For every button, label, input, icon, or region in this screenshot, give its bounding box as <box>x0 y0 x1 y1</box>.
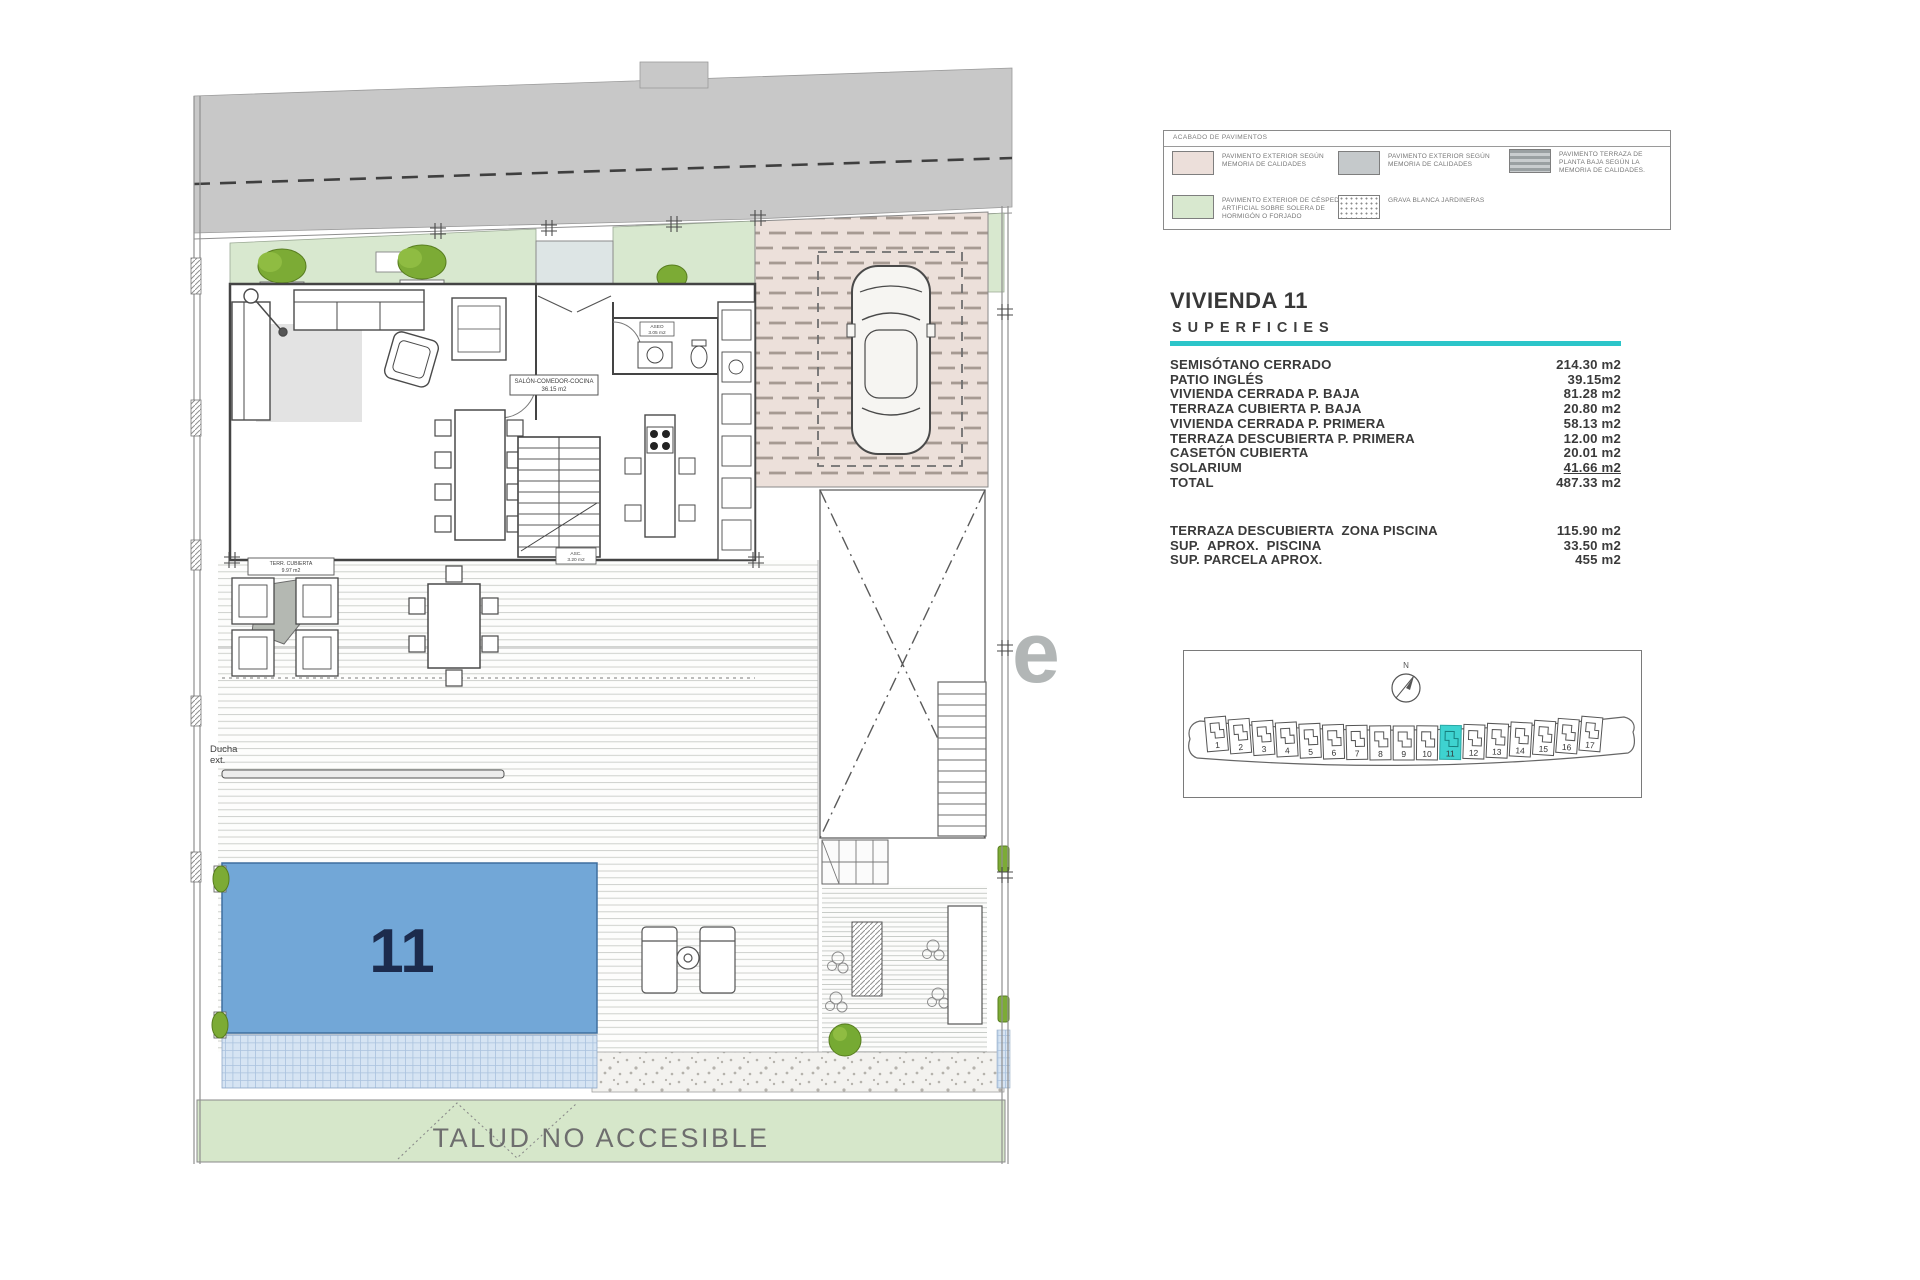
surface-row: PATIO INGLÉS39.15m2 <box>1170 373 1621 388</box>
page-title: VIVIENDA 11 <box>1170 288 1308 314</box>
interior-stairs: ASC. 3.20 m2 <box>518 437 600 564</box>
keyplan-plot-number: 16 <box>1562 742 1572 753</box>
salon-label-box: SALÓN-COMEDOR-COCINA 36.15 m2 <box>510 375 598 395</box>
legend-swatch-green <box>1172 195 1214 219</box>
surface-row: VIVIENDA CERRADA P. BAJA81.28 m2 <box>1170 387 1621 402</box>
legend-swatch-dots <box>1338 195 1380 219</box>
house-interior: ASC. 3.20 m2 ASEO 3.05 m2 <box>230 284 755 564</box>
keyplan-plot: 15 <box>1533 720 1556 755</box>
surface-row-value: 214.30 m2 <box>1556 358 1621 373</box>
shower-label-2: ext. <box>210 755 225 766</box>
pool-number: 11 <box>369 917 435 986</box>
legend-swatch-striped <box>1509 149 1551 173</box>
planter-box <box>852 922 882 996</box>
north-compass: N <box>1392 661 1420 702</box>
watermark-letter: e <box>1012 605 1060 701</box>
cooktop <box>647 427 673 453</box>
keyplan-plot-number: 12 <box>1469 748 1479 758</box>
surface-row-label: VIVIENDA CERRADA P. PRIMERA <box>1170 417 1385 432</box>
pavement-legend: ACABADO DE PAVIMENTOS PAVIMENTO EXTERIOR… <box>1163 130 1671 230</box>
exterior-stair <box>938 682 986 836</box>
legend-label: PAVIMENTO EXTERIOR SEGÚN MEMORIA DE CALI… <box>1222 153 1334 169</box>
talud-band: TALUD NO ACCESIBLE <box>197 1100 1005 1162</box>
surface-row: VIVIENDA CERRADA P. PRIMERA58.13 m2 <box>1170 417 1621 432</box>
salon-label: SALÓN-COMEDOR-COCINA <box>514 378 593 385</box>
surface-row-value: 58.13 m2 <box>1564 417 1621 432</box>
surface-row: SOLARIUM41.66 m2 <box>1170 461 1621 476</box>
keyplan-plot: 13 <box>1486 723 1508 758</box>
salon-area-label: 36.15 m2 <box>541 387 567 393</box>
surface-row: TERRAZA CUBIERTA P. BAJA20.80 m2 <box>1170 402 1621 417</box>
plan-sheet: 11 <box>0 0 1920 1280</box>
grate <box>822 840 888 884</box>
surface-row-value: 39.15m2 <box>1568 373 1621 388</box>
pool: 11 <box>222 863 597 1033</box>
surface-row-label: SUP. APROX. PISCINA <box>1170 539 1322 554</box>
surface-row-label: TOTAL <box>1170 476 1214 491</box>
stair-area-label: 3.20 m2 <box>567 557 585 563</box>
rug <box>256 324 362 422</box>
floor-lamp <box>244 289 258 303</box>
surface-row-label: SOLARIUM <box>1170 461 1242 476</box>
superficies-heading: SUPERFICIES <box>1172 320 1335 336</box>
site-key-plan: N 1234567891011121314151617 <box>1183 650 1642 798</box>
street-band <box>194 62 1012 239</box>
surface-row-value: 115.90 m2 <box>1557 524 1621 539</box>
bath-label: ASEO <box>650 324 664 330</box>
keyplan-plot: 2 <box>1228 718 1252 754</box>
keyplan-plot-number: 10 <box>1422 749 1432 759</box>
surface-row-label: CASETÓN CUBIERTA <box>1170 446 1309 461</box>
keyplan-plot-number: 3 <box>1261 744 1267 754</box>
keyplan-plot: 8 <box>1370 726 1391 760</box>
keyplan-plot-number: 7 <box>1355 748 1360 758</box>
keyplan-plot: 10 <box>1416 726 1437 760</box>
keyplan-plot: 16 <box>1556 718 1580 754</box>
carport-area <box>755 212 988 487</box>
keyplan-plot-number: 5 <box>1308 747 1313 757</box>
stair-label: ASC. <box>570 551 581 557</box>
gravel-strip <box>592 1052 1004 1092</box>
surface-row-value: 455 m2 <box>1575 553 1621 568</box>
talud-label: TALUD NO ACCESIBLE <box>432 1123 769 1153</box>
legend-label: PAVIMENTO EXTERIOR DE CÉSPED ARTIFICIAL … <box>1222 197 1340 221</box>
keyplan-plot: 4 <box>1275 722 1298 757</box>
keyplan-plot: 11 <box>1440 725 1462 759</box>
surface-row-value: 81.28 m2 <box>1564 387 1621 402</box>
surface-row-value: 33.50 m2 <box>1564 539 1621 554</box>
surface-table-extra: TERRAZA DESCUBIERTA ZONA PISCINA115.90 m… <box>1170 524 1621 568</box>
surface-row-label: SUP. PARCELA APROX. <box>1170 553 1323 568</box>
surface-row-label: SEMISÓTANO CERRADO <box>1170 358 1332 373</box>
surface-row-label: PATIO INGLÉS <box>1170 373 1264 388</box>
keyplan-plot-number: 4 <box>1285 745 1291 755</box>
surface-row-label: VIVIENDA CERRADA P. BAJA <box>1170 387 1360 402</box>
surface-row-value: 20.01 m2 <box>1564 446 1621 461</box>
surface-row: TOTAL487.33 m2 <box>1170 476 1621 491</box>
keyplan-plot: 17 <box>1579 716 1603 752</box>
keyplan-plot-number: 15 <box>1538 744 1548 755</box>
shower-label-1: Ducha <box>210 744 238 755</box>
car-icon <box>847 266 935 454</box>
key-plan-drawing: N 1234567891011121314151617 <box>1184 651 1638 794</box>
legend-label: GRAVA BLANCA JARDINERAS <box>1388 197 1500 205</box>
keyplan-plot-number: 11 <box>1446 748 1455 758</box>
keyplan-plot: 9 <box>1393 726 1414 760</box>
keyplan-plot: 5 <box>1299 723 1321 758</box>
terrace-label: TERR. CUBIERTA <box>270 561 313 567</box>
surface-row-value: 12.00 m2 <box>1564 432 1621 447</box>
legend-swatch-pink <box>1172 151 1214 175</box>
shower-screen <box>222 770 504 778</box>
keyplan-plot: 14 <box>1509 722 1532 757</box>
surface-row: SUP. APROX. PISCINA33.50 m2 <box>1170 539 1621 554</box>
surface-row-value: 20.80 m2 <box>1564 402 1621 417</box>
bath-area-label: 3.05 m2 <box>648 330 666 336</box>
keyplan-plot-number: 8 <box>1378 749 1383 759</box>
surface-row-label: TERRAZA DESCUBIERTA P. PRIMERA <box>1170 432 1415 447</box>
surface-row-value: 487.33 m2 <box>1556 476 1621 491</box>
legend-swatch-gray <box>1338 151 1380 175</box>
legend-label: PAVIMENTO EXTERIOR SEGÚN MEMORIA DE CALI… <box>1388 153 1500 169</box>
terrace-area-label: 9.97 m2 <box>282 568 301 574</box>
north-label: N <box>1403 661 1409 670</box>
keyplan-plot-number: 13 <box>1492 747 1502 757</box>
surface-row-label: TERRAZA DESCUBIERTA ZONA PISCINA <box>1170 524 1438 539</box>
surface-row: SEMISÓTANO CERRADO214.30 m2 <box>1170 358 1621 373</box>
surface-row: TERRAZA DESCUBIERTA P. PRIMERA12.00 m2 <box>1170 432 1621 447</box>
toilet <box>691 346 707 368</box>
keyplan-plot: 7 <box>1346 725 1368 759</box>
keyplan-plot-number: 14 <box>1515 745 1525 756</box>
keyplan-plot-number: 6 <box>1331 748 1336 758</box>
pool-beach <box>222 1035 597 1088</box>
keyplan-plot: 1 <box>1205 716 1229 752</box>
bathroom: ASEO 3.05 m2 <box>613 318 718 374</box>
legend-divider <box>1164 146 1670 147</box>
keyplan-plot: 6 <box>1322 724 1344 759</box>
keyplan-plot-number: 17 <box>1585 740 1596 751</box>
round-bush <box>829 1024 861 1056</box>
surface-row: CASETÓN CUBIERTA20.01 m2 <box>1170 446 1621 461</box>
accent-rule <box>1170 341 1621 346</box>
surface-row-value: 41.66 m2 <box>1564 461 1621 476</box>
surface-row-label: TERRAZA CUBIERTA P. BAJA <box>1170 402 1362 417</box>
outdoor-bench <box>948 906 982 1024</box>
legend-label: PAVIMENTO TERRAZA DE PLANTA BAJA SEGÚN L… <box>1559 151 1665 175</box>
surface-row: TERRAZA DESCUBIERTA ZONA PISCINA115.90 m… <box>1170 524 1621 539</box>
keyplan-plot: 12 <box>1463 724 1485 759</box>
surface-row: SUP. PARCELA APROX.455 m2 <box>1170 553 1621 568</box>
keyplan-plot-number: 9 <box>1401 749 1406 759</box>
surface-table: SEMISÓTANO CERRADO214.30 m2PATIO INGLÉS3… <box>1170 358 1621 490</box>
legend-title: ACABADO DE PAVIMENTOS <box>1173 134 1267 141</box>
keyplan-plot: 3 <box>1252 720 1275 755</box>
